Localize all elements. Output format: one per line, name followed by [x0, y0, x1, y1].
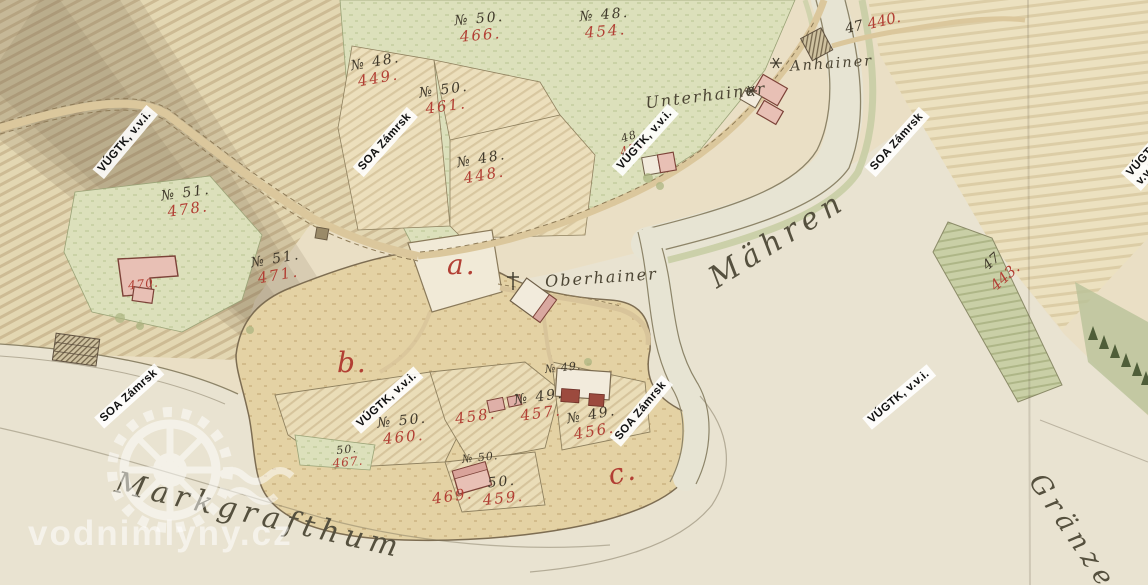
field-structure [315, 227, 329, 240]
watermark-waterwheel-logo [80, 368, 310, 585]
weir [52, 333, 99, 366]
map-canvas[interactable]: № 50. 466. № 48. 454. № 48. 449. № 50. 4… [0, 0, 1148, 585]
farm-outbuilding [132, 287, 154, 304]
small-building [507, 395, 522, 407]
small-building [487, 397, 505, 412]
